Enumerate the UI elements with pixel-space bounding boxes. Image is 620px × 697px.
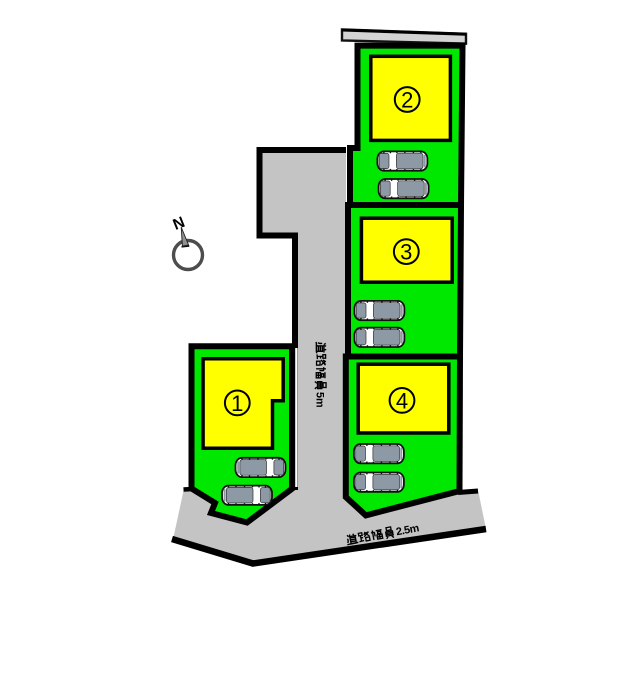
svg-text:4: 4: [396, 389, 408, 414]
svg-text:1: 1: [231, 391, 243, 416]
svg-text:3: 3: [400, 240, 412, 265]
svg-text:2: 2: [401, 88, 413, 113]
svg-text:5m: 5m: [313, 392, 325, 408]
